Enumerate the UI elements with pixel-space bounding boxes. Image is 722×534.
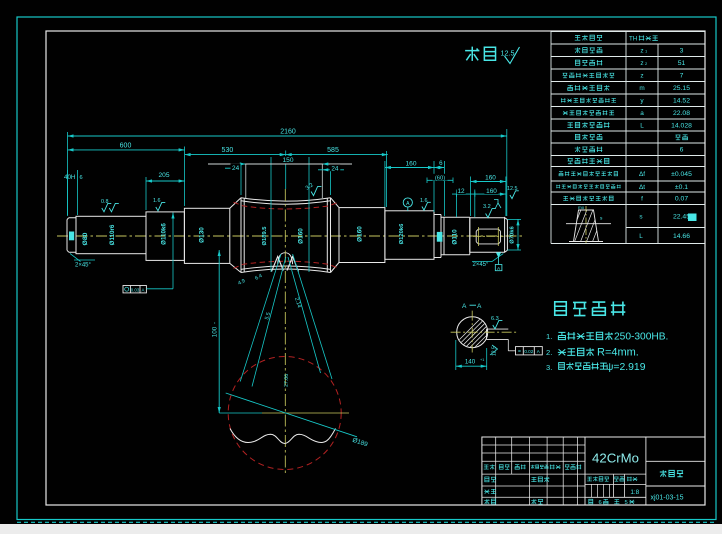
svg-text:A: A	[142, 288, 145, 293]
svg-text:6: 6	[599, 500, 602, 506]
svg-text:(60): (60)	[435, 175, 445, 181]
svg-text:3.2: 3.2	[483, 204, 491, 210]
svg-text:250-300HB.: 250-300HB.	[614, 332, 668, 343]
svg-text:A: A	[477, 303, 482, 310]
svg-text:L: L	[639, 233, 643, 240]
svg-text:Ø110: Ø110	[452, 229, 459, 245]
svg-text:2×45°: 2×45°	[75, 263, 92, 269]
svg-text:14.66: 14.66	[673, 233, 690, 240]
svg-text:40H: 40H	[64, 174, 75, 181]
svg-text:z: z	[640, 60, 643, 67]
svg-text:Ø110k6: Ø110k6	[161, 223, 168, 245]
svg-text:14.028: 14.028	[671, 122, 692, 129]
svg-text:A: A	[462, 303, 467, 310]
svg-text:3.: 3.	[546, 363, 552, 372]
svg-text:3: 3	[680, 48, 684, 55]
svg-text:600: 600	[120, 143, 132, 150]
svg-text:Ø120k6: Ø120k6	[399, 223, 405, 244]
svg-text:-: -	[213, 322, 219, 324]
svg-text:L: L	[640, 122, 644, 129]
svg-text:1:8: 1:8	[630, 489, 639, 496]
svg-text:Ø130: Ø130	[199, 227, 206, 243]
svg-text:=: =	[518, 349, 521, 355]
svg-text:ψ=2.919: ψ=2.919	[606, 362, 646, 373]
svg-text:6.3: 6.3	[491, 316, 499, 322]
svg-text:24: 24	[232, 165, 240, 172]
svg-text:42CrMo: 42CrMo	[592, 451, 639, 466]
svg-text:24: 24	[331, 166, 339, 173]
svg-text:Ø160: Ø160	[357, 226, 364, 242]
svg-text:160: 160	[405, 160, 416, 167]
svg-text:±0.045: ±0.045	[671, 171, 692, 178]
svg-text:12.5: 12.5	[501, 49, 515, 58]
svg-text:Ø160: Ø160	[298, 228, 305, 244]
svg-text:Ø80: Ø80	[82, 232, 89, 245]
svg-text:Ø70k6: Ø70k6	[510, 226, 516, 244]
svg-text:a: a	[640, 110, 644, 117]
svg-text:f: f	[641, 196, 643, 203]
svg-text:Δf: Δf	[639, 171, 645, 178]
svg-text:Δt: Δt	[639, 184, 645, 191]
svg-text:12: 12	[457, 188, 465, 195]
svg-text:0.02: 0.02	[524, 349, 533, 354]
svg-text:s: s	[639, 214, 642, 221]
svg-text:mx: mx	[578, 205, 585, 210]
svg-text:2160: 2160	[280, 129, 296, 136]
svg-text:2.: 2.	[546, 348, 552, 357]
svg-text:585: 585	[327, 147, 339, 154]
svg-text:25.15: 25.15	[673, 85, 690, 92]
svg-text:205: 205	[158, 172, 169, 179]
svg-text:14.52: 14.52	[673, 98, 690, 105]
svg-text:6: 6	[680, 147, 684, 154]
svg-text:1.6: 1.6	[420, 198, 428, 204]
svg-text:0.03: 0.03	[131, 288, 140, 293]
svg-text:R=4mm.: R=4mm.	[597, 347, 639, 359]
svg-text:xj01-03-15: xj01-03-15	[650, 495, 683, 502]
svg-text:TH: TH	[629, 35, 637, 42]
svg-text:22.45: 22.45	[673, 214, 690, 221]
svg-text:160: 160	[485, 174, 496, 181]
svg-text:51: 51	[678, 60, 686, 67]
svg-text:Ø110r6: Ø110r6	[109, 224, 116, 245]
svg-text:±0.1: ±0.1	[675, 184, 688, 191]
svg-text:m: m	[639, 85, 644, 92]
svg-text:100: 100	[212, 326, 219, 337]
svg-text:22.08: 22.08	[673, 110, 690, 117]
svg-text:530: 530	[222, 147, 234, 154]
svg-text:5: 5	[625, 500, 628, 506]
svg-text:140: 140	[465, 358, 476, 365]
svg-text:6: 6	[80, 175, 83, 181]
svg-text:1.6: 1.6	[153, 198, 161, 204]
svg-text:2×45°: 2×45°	[473, 262, 490, 268]
svg-text:z: z	[640, 73, 643, 80]
svg-text:Ø189.5: Ø189.5	[262, 226, 268, 246]
svg-text:z: z	[640, 48, 643, 55]
svg-text:160: 160	[486, 188, 497, 195]
svg-text:0.07: 0.07	[675, 196, 688, 203]
svg-text:7: 7	[680, 73, 684, 80]
svg-text:+1: +1	[480, 358, 484, 362]
svg-text:27.06: 27.06	[284, 374, 290, 387]
svg-text:1.: 1.	[546, 332, 552, 341]
svg-text:150: 150	[282, 157, 293, 164]
svg-text:6: 6	[439, 160, 443, 167]
